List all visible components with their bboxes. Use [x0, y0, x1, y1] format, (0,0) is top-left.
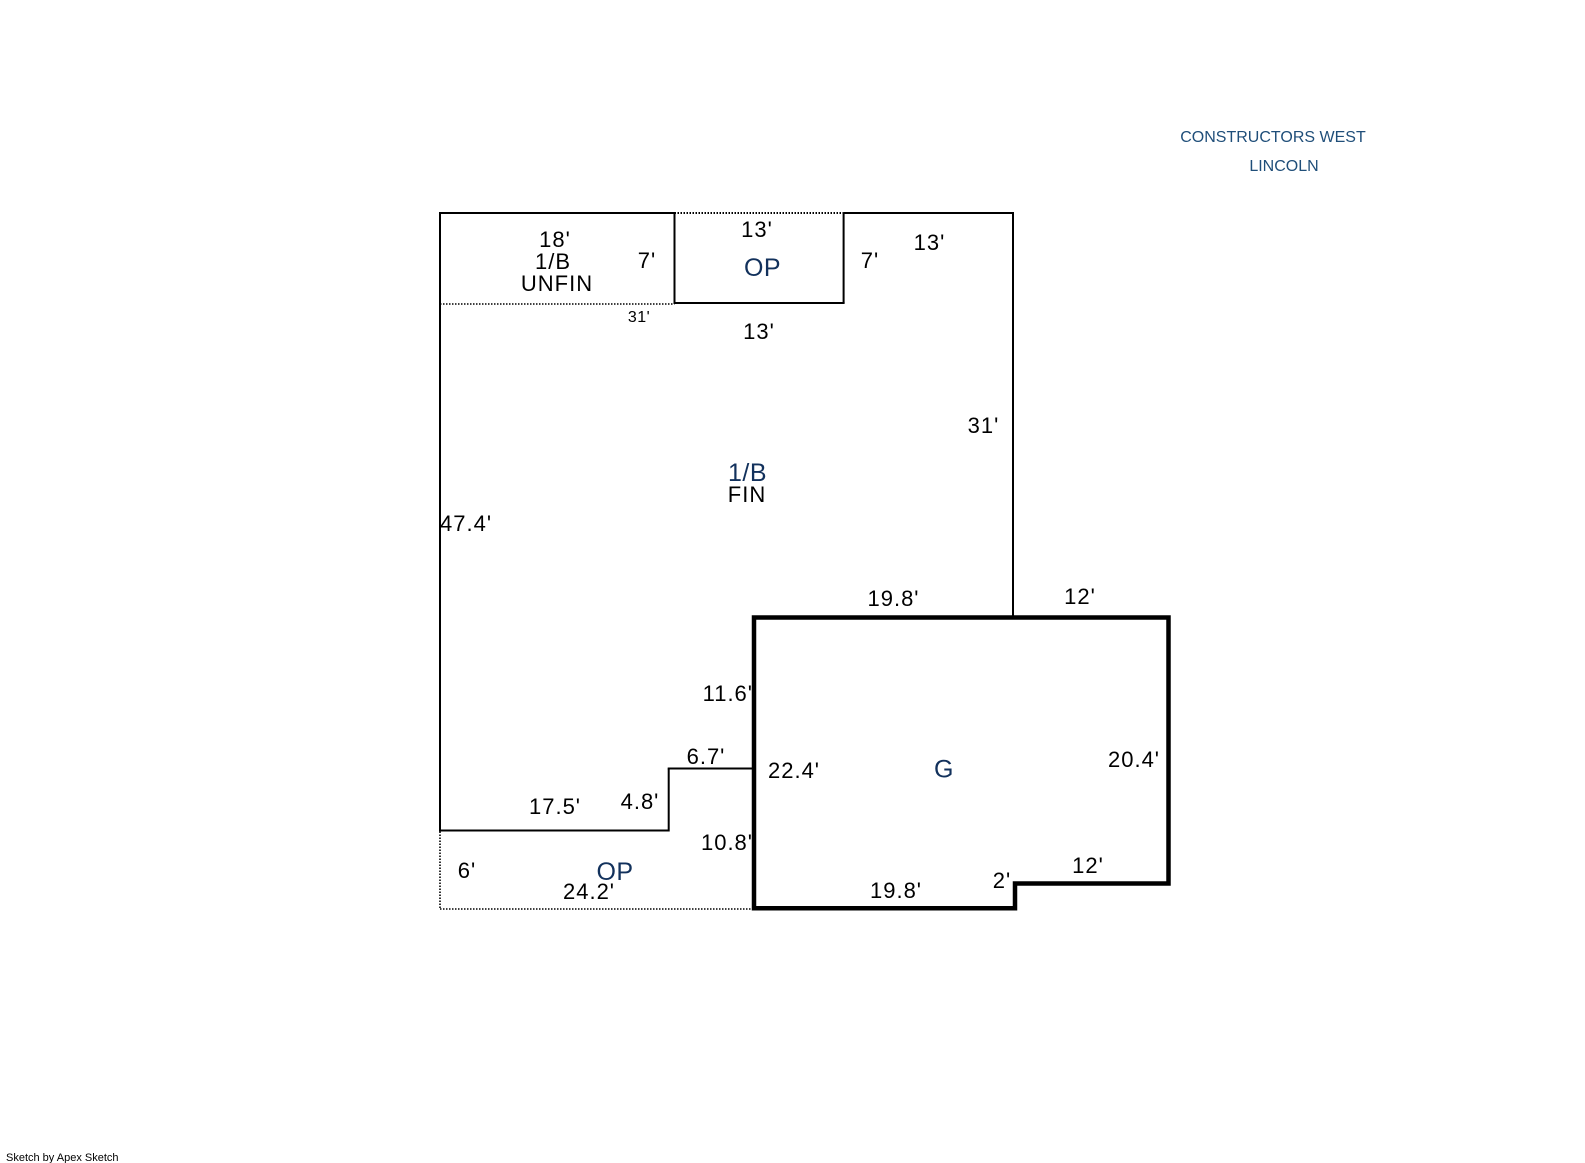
svg-text:Sketch by Apex Sketch: Sketch by Apex Sketch [6, 1152, 119, 1163]
svg-text:31': 31' [968, 413, 1000, 438]
svg-text:OP: OP [744, 254, 781, 282]
svg-text:19.8': 19.8' [867, 586, 919, 611]
svg-text:22.4': 22.4' [768, 758, 820, 783]
svg-text:12': 12' [1072, 853, 1104, 878]
svg-text:4.8': 4.8' [621, 789, 660, 814]
svg-text:2': 2' [993, 868, 1011, 893]
svg-text:7': 7' [638, 248, 656, 273]
svg-text:6.7': 6.7' [687, 744, 726, 769]
svg-text:11.6': 11.6' [703, 681, 753, 706]
svg-text:6': 6' [458, 858, 476, 883]
svg-text:17.5': 17.5' [529, 794, 581, 819]
svg-text:24.2': 24.2' [563, 879, 615, 904]
svg-text:CONSTRUCTORS WEST: CONSTRUCTORS WEST [1180, 129, 1366, 146]
svg-text:FIN: FIN [728, 482, 766, 507]
svg-text:12': 12' [1064, 584, 1096, 609]
svg-text:G: G [934, 756, 954, 784]
svg-text:10.8': 10.8' [701, 830, 753, 855]
svg-text:7': 7' [861, 248, 879, 273]
svg-text:47.4': 47.4' [440, 511, 492, 536]
svg-text:13': 13' [914, 230, 946, 255]
svg-text:20.4': 20.4' [1108, 747, 1160, 772]
svg-text:19.8': 19.8' [870, 878, 922, 903]
svg-text:LINCOLN: LINCOLN [1249, 158, 1318, 175]
svg-text:UNFIN: UNFIN [521, 271, 593, 296]
svg-text:31': 31' [628, 309, 650, 326]
svg-text:13': 13' [743, 319, 775, 344]
svg-text:13': 13' [741, 217, 773, 242]
